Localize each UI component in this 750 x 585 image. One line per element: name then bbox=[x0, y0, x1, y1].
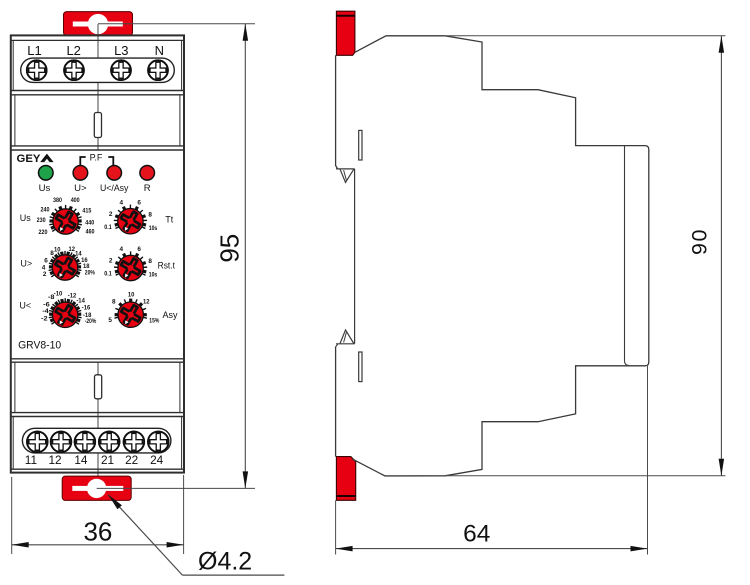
svg-text:14: 14 bbox=[74, 453, 88, 467]
svg-text:-16: -16 bbox=[82, 304, 91, 311]
svg-text:L2: L2 bbox=[66, 43, 80, 58]
svg-text:0.1: 0.1 bbox=[104, 224, 112, 231]
svg-text:U>: U> bbox=[74, 183, 87, 194]
svg-text:415: 415 bbox=[82, 207, 91, 214]
svg-text:Rst.t: Rst.t bbox=[158, 261, 176, 271]
svg-text:4: 4 bbox=[120, 200, 124, 207]
svg-text:24: 24 bbox=[150, 453, 164, 467]
svg-text:Us: Us bbox=[39, 183, 51, 194]
svg-text:21: 21 bbox=[101, 453, 114, 467]
svg-text:-2: -2 bbox=[41, 315, 48, 322]
svg-text:220: 220 bbox=[39, 229, 48, 236]
svg-text:460: 460 bbox=[86, 229, 95, 236]
svg-text:12: 12 bbox=[48, 453, 61, 467]
svg-text:5: 5 bbox=[108, 317, 112, 324]
svg-text:95: 95 bbox=[215, 234, 245, 263]
svg-text:230: 230 bbox=[37, 217, 46, 224]
svg-text:8: 8 bbox=[148, 258, 152, 265]
svg-text:Ø4.2: Ø4.2 bbox=[198, 548, 252, 576]
svg-text:8: 8 bbox=[112, 298, 116, 305]
svg-text:90: 90 bbox=[688, 228, 712, 255]
svg-text:R: R bbox=[144, 183, 151, 194]
svg-text:240: 240 bbox=[41, 206, 50, 213]
svg-text:2: 2 bbox=[109, 258, 113, 265]
svg-text:22: 22 bbox=[125, 453, 138, 467]
svg-text:0.1: 0.1 bbox=[104, 271, 112, 278]
svg-text:4: 4 bbox=[120, 246, 124, 253]
svg-text:20%: 20% bbox=[85, 270, 95, 277]
svg-text:10s: 10s bbox=[149, 225, 158, 232]
svg-text:6: 6 bbox=[137, 200, 141, 207]
svg-text:380: 380 bbox=[53, 197, 62, 204]
svg-text:L3: L3 bbox=[114, 43, 128, 58]
svg-text:6: 6 bbox=[137, 246, 141, 253]
svg-text:64: 64 bbox=[463, 520, 490, 547]
svg-text:GEY: GEY bbox=[17, 153, 42, 165]
svg-text:L1: L1 bbox=[27, 43, 41, 58]
svg-text:2: 2 bbox=[43, 271, 47, 278]
svg-text:36: 36 bbox=[83, 516, 112, 546]
svg-text:N: N bbox=[155, 43, 164, 58]
svg-text:U>: U> bbox=[20, 259, 32, 269]
svg-text:15%: 15% bbox=[149, 317, 159, 324]
svg-text:10: 10 bbox=[54, 246, 61, 253]
svg-text:P.F: P.F bbox=[90, 152, 103, 162]
svg-text:6: 6 bbox=[44, 258, 48, 265]
svg-text:-20%: -20% bbox=[85, 318, 97, 325]
svg-text:Asy: Asy bbox=[162, 310, 178, 320]
svg-text:GRV8-10: GRV8-10 bbox=[18, 340, 61, 352]
svg-text:-12: -12 bbox=[68, 292, 77, 299]
svg-text:400: 400 bbox=[71, 197, 80, 204]
svg-text:U</Asy: U</Asy bbox=[100, 183, 129, 194]
svg-text:-4: -4 bbox=[42, 308, 49, 315]
svg-text:Us: Us bbox=[20, 213, 31, 223]
svg-text:440: 440 bbox=[85, 220, 94, 227]
svg-text:-8: -8 bbox=[48, 294, 55, 301]
svg-text:U<: U< bbox=[19, 300, 31, 310]
svg-text:Tt: Tt bbox=[165, 215, 173, 225]
svg-text:10s: 10s bbox=[149, 272, 158, 279]
svg-text:2: 2 bbox=[109, 211, 113, 218]
svg-text:8: 8 bbox=[148, 211, 152, 218]
svg-text:10: 10 bbox=[128, 291, 135, 298]
svg-text:11: 11 bbox=[25, 453, 37, 467]
svg-text:-10: -10 bbox=[54, 291, 63, 298]
svg-text:12: 12 bbox=[143, 298, 150, 305]
